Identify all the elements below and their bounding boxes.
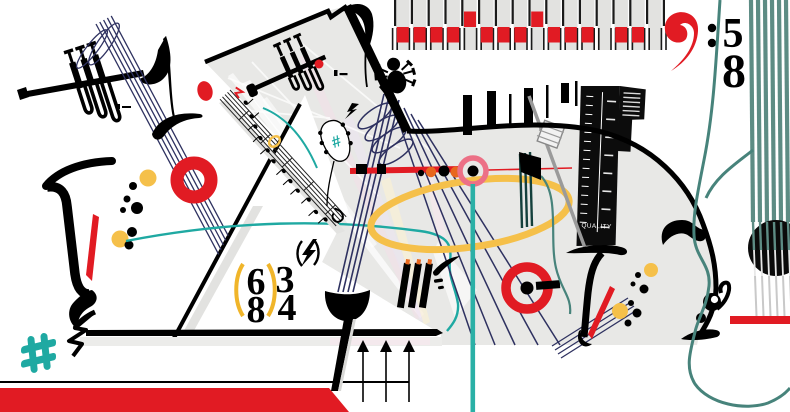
svg-text:4: 4 [278, 287, 297, 329]
svg-text:8: 8 [247, 289, 266, 331]
svg-text:8: 8 [722, 45, 746, 98]
